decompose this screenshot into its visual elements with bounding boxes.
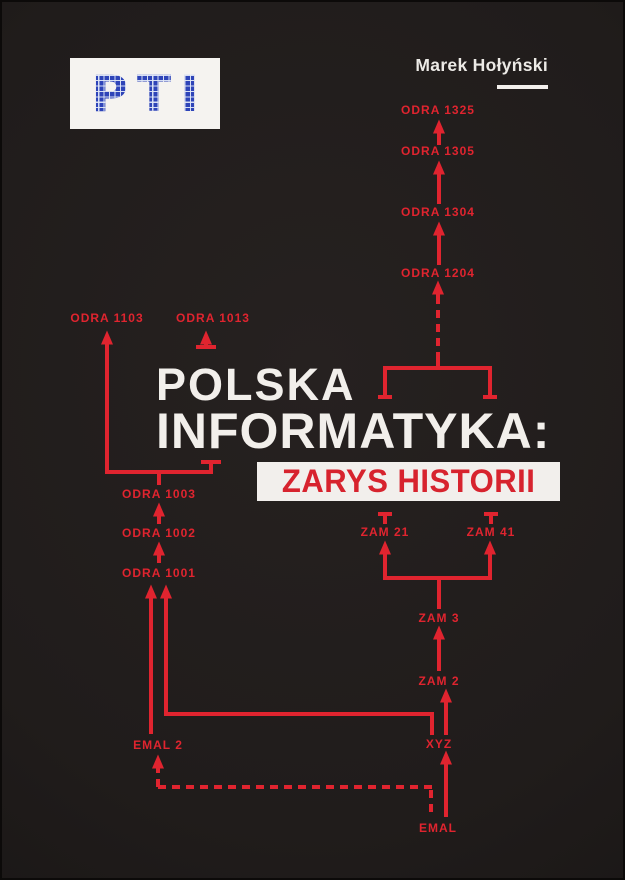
title-line-2: INFORMATYKA:	[156, 406, 550, 456]
author-name: Marek Hołyński	[415, 55, 548, 76]
node-label-emal-2: EMAL 2	[133, 739, 183, 751]
node-label-odra-1325: ODRA 1325	[401, 104, 475, 116]
node-label-odra-1103: ODRA 1103	[70, 312, 143, 324]
node-label-zam-2: ZAM 2	[419, 675, 460, 687]
node-label-emal: EMAL	[419, 822, 457, 834]
node-label-zam-21: ZAM 21	[361, 526, 410, 538]
author-underline	[497, 85, 548, 89]
node-label-odra-1001: ODRA 1001	[122, 567, 196, 579]
node-label-xyz: XYZ	[426, 738, 452, 750]
node-label-odra-1304: ODRA 1304	[401, 206, 475, 218]
pti-logo-text: PTI	[82, 69, 207, 119]
subtitle-text: ZARYS HISTORII	[282, 463, 535, 500]
subtitle-box: ZARYS HISTORII	[257, 462, 560, 501]
node-label-odra-1305: ODRA 1305	[401, 145, 475, 157]
node-label-odra-1013: ODRA 1013	[176, 312, 250, 324]
node-label-zam-3: ZAM 3	[419, 612, 460, 624]
node-label-odra-1003: ODRA 1003	[122, 488, 196, 500]
title-line-1: POLSKA	[156, 362, 356, 407]
pti-logo: PTI	[70, 58, 220, 129]
node-label-odra-1204: ODRA 1204	[401, 267, 475, 279]
node-label-odra-1002: ODRA 1002	[122, 527, 196, 539]
book-cover: ODRA 1325ODRA 1305ODRA 1304ODRA 1204ODRA…	[0, 0, 625, 880]
node-label-zam-41: ZAM 41	[467, 526, 516, 538]
